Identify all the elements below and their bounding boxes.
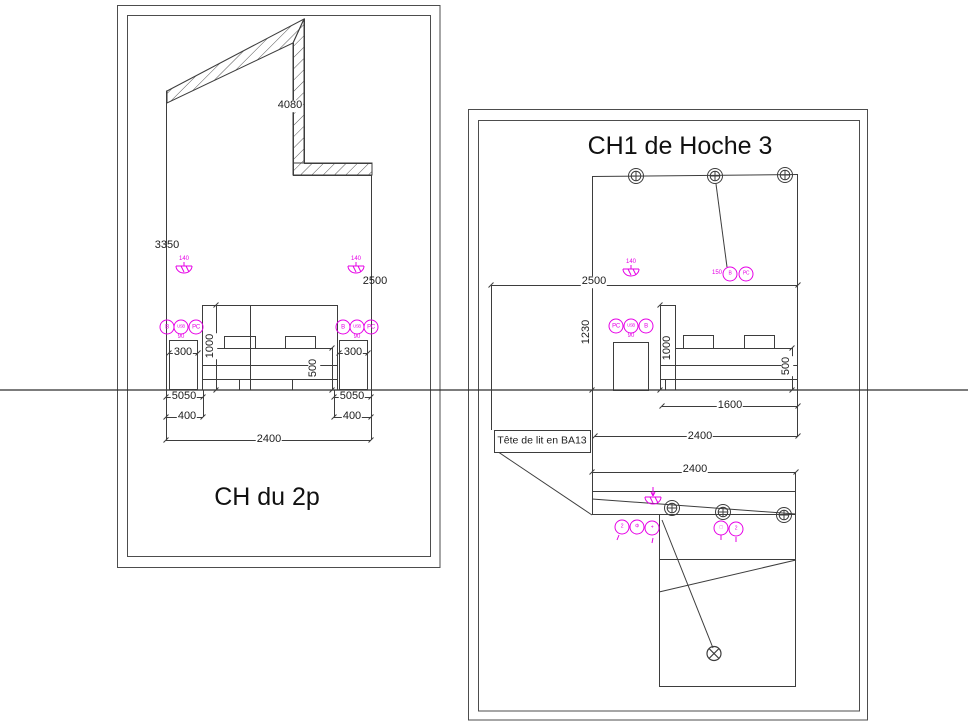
cad-canvas: 4080 3350 2500 140 140 B USB PC 90 B USB… [0, 0, 968, 724]
right-drawing-title: CH1 de Hoche 3 [587, 133, 774, 159]
dim-bed-500: 500 [781, 356, 793, 376]
dim-3350: 3350 [154, 240, 180, 252]
drawing-geometry [0, 0, 968, 724]
right-room [491, 174, 798, 515]
plan-socket-icon: 2 [729, 522, 744, 537]
dim-nightstand-300: 300 [343, 347, 363, 359]
dim-2400-elevation: 2400 [687, 431, 713, 443]
lamp-height-left: 140 [179, 256, 189, 262]
plan-switch-icon: + [645, 521, 660, 536]
plan-switch-icon: 2 [615, 520, 630, 535]
dim-nightstand-300: 300 [173, 347, 193, 359]
power-socket-icon: PC [189, 320, 204, 335]
switch-b-icon: B [723, 267, 738, 282]
switch-b-icon: B [160, 320, 175, 335]
plan-socket-icon: □ [714, 521, 729, 536]
dim-1600: 1600 [717, 400, 743, 412]
power-socket-icon: PC [609, 319, 624, 334]
dim-bed-500: 500 [308, 358, 320, 378]
headboard-note: Tête de lit en BA13 [496, 435, 587, 446]
dim-headboard-1000: 1000 [662, 335, 674, 361]
dim-2500-left: 2500 [362, 276, 388, 288]
power-socket-icon: PC [739, 267, 754, 282]
socket-height: 90 [354, 334, 361, 340]
dim-bed-2400: 2400 [256, 434, 282, 446]
dim-headboard-1000: 1000 [205, 333, 217, 359]
bed-switch-height: 150 [712, 270, 722, 276]
dim-400: 400 [342, 411, 362, 423]
dim-400: 400 [177, 411, 197, 423]
dim-2500-right: 2500 [581, 276, 607, 288]
dim-2400-plan: 2400 [682, 464, 708, 476]
dim-5050: 5050 [339, 391, 365, 403]
left-bed [170, 305, 368, 390]
switch-b-icon: B [639, 319, 654, 334]
lamp-height: 140 [626, 259, 636, 265]
usb-socket-icon: USB [350, 320, 365, 335]
spotlight-icons [629, 168, 793, 523]
pendant-light-icon [707, 647, 721, 661]
dim-1230: 1230 [581, 319, 593, 345]
power-socket-icon: PC [364, 320, 379, 335]
lamp-height-right: 140 [351, 256, 361, 262]
usb-socket-icon: USB [174, 320, 189, 335]
plan-switch-icon: Φ [630, 520, 645, 535]
right-plan [592, 472, 796, 687]
left-drawing-title: CH du 2p [213, 484, 321, 510]
right-sheet-border [469, 110, 868, 721]
left-wall-lamp-icons [176, 262, 364, 273]
dim-5050: 5050 [171, 391, 197, 403]
usb-socket-icon: USB [624, 319, 639, 334]
dim-wall-4080: 4080 [277, 100, 303, 112]
socket-height: 90 [628, 333, 635, 339]
switch-b-icon: B [336, 320, 351, 335]
socket-height: 90 [178, 334, 185, 340]
